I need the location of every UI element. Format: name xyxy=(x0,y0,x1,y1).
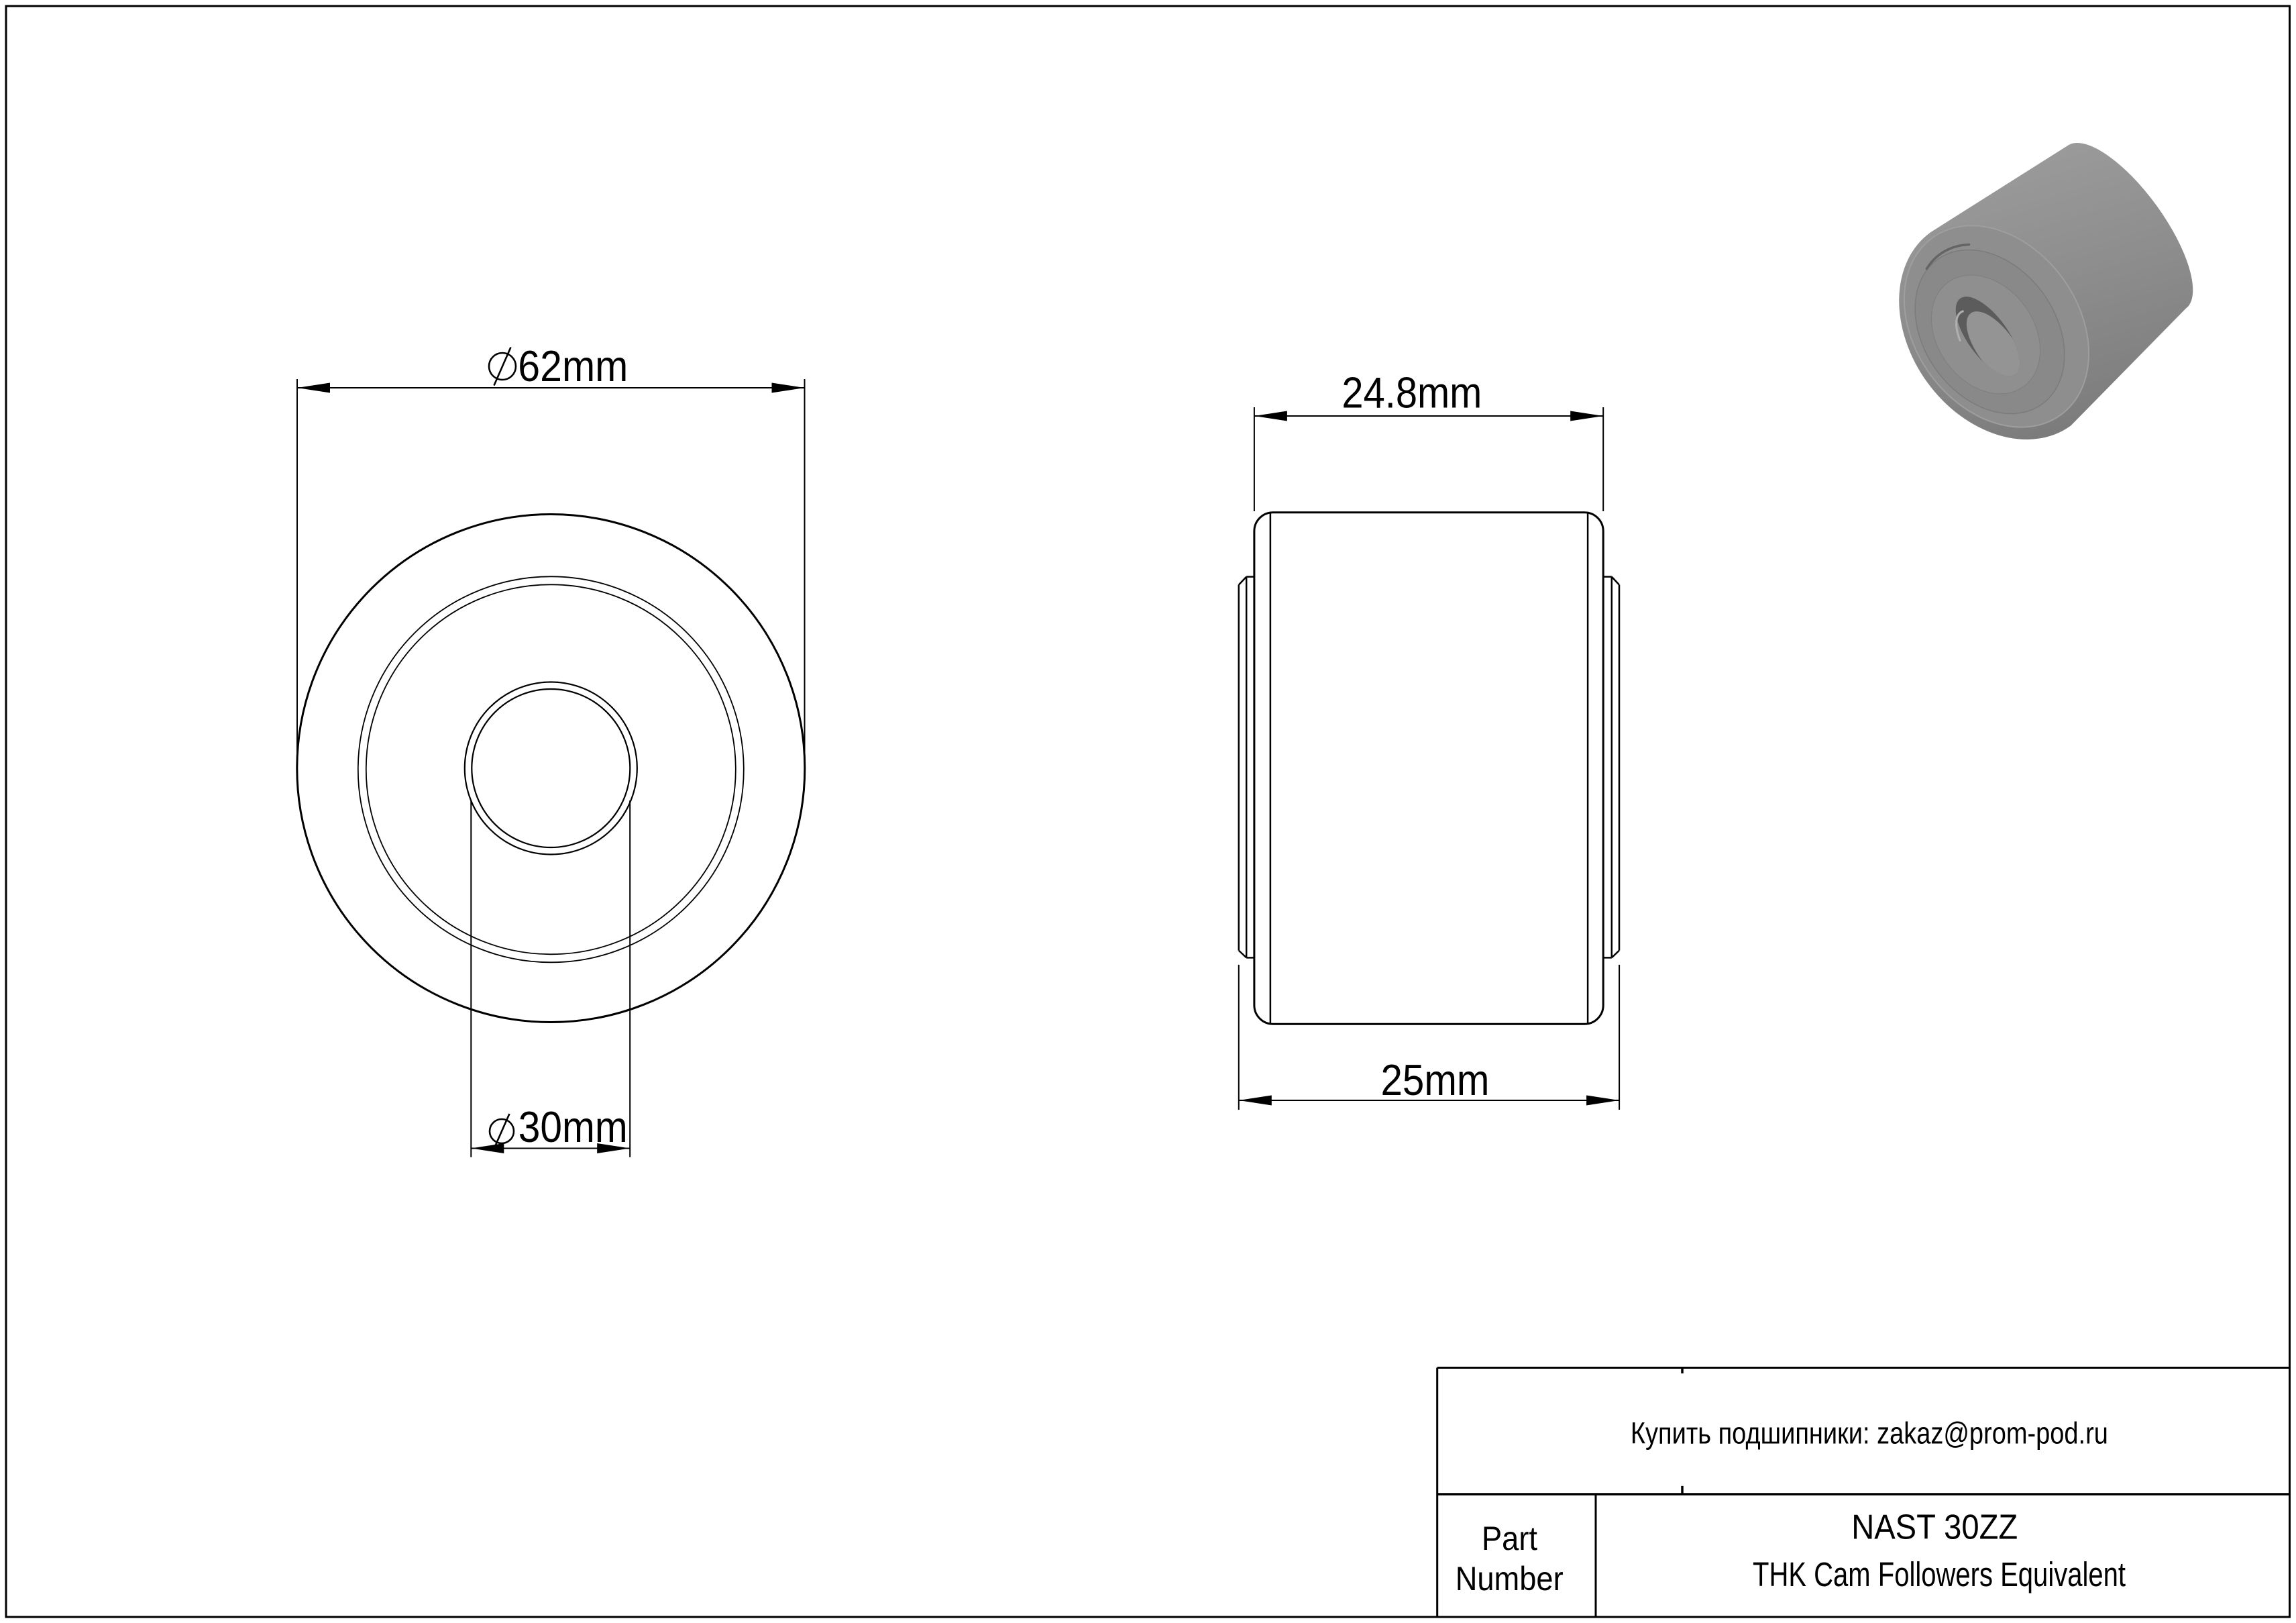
svg-text:30mm: 30mm xyxy=(518,1102,628,1151)
svg-text:NAST 30ZZ: NAST 30ZZ xyxy=(1851,1508,2018,1547)
svg-text:THK Cam Followers Equivalent: THK Cam Followers Equivalent xyxy=(1753,1555,2126,1593)
svg-text:25mm: 25mm xyxy=(1381,1055,1490,1104)
svg-text:Part: Part xyxy=(1482,1520,1537,1557)
svg-text:24.8mm: 24.8mm xyxy=(1342,368,1482,417)
svg-text:62mm: 62mm xyxy=(518,342,628,390)
svg-text:Number: Number xyxy=(1456,1560,1564,1598)
svg-text:Купить подшипники: zakaz@prom-: Купить подшипники: zakaz@prom-pod.ru xyxy=(1631,1416,2108,1451)
